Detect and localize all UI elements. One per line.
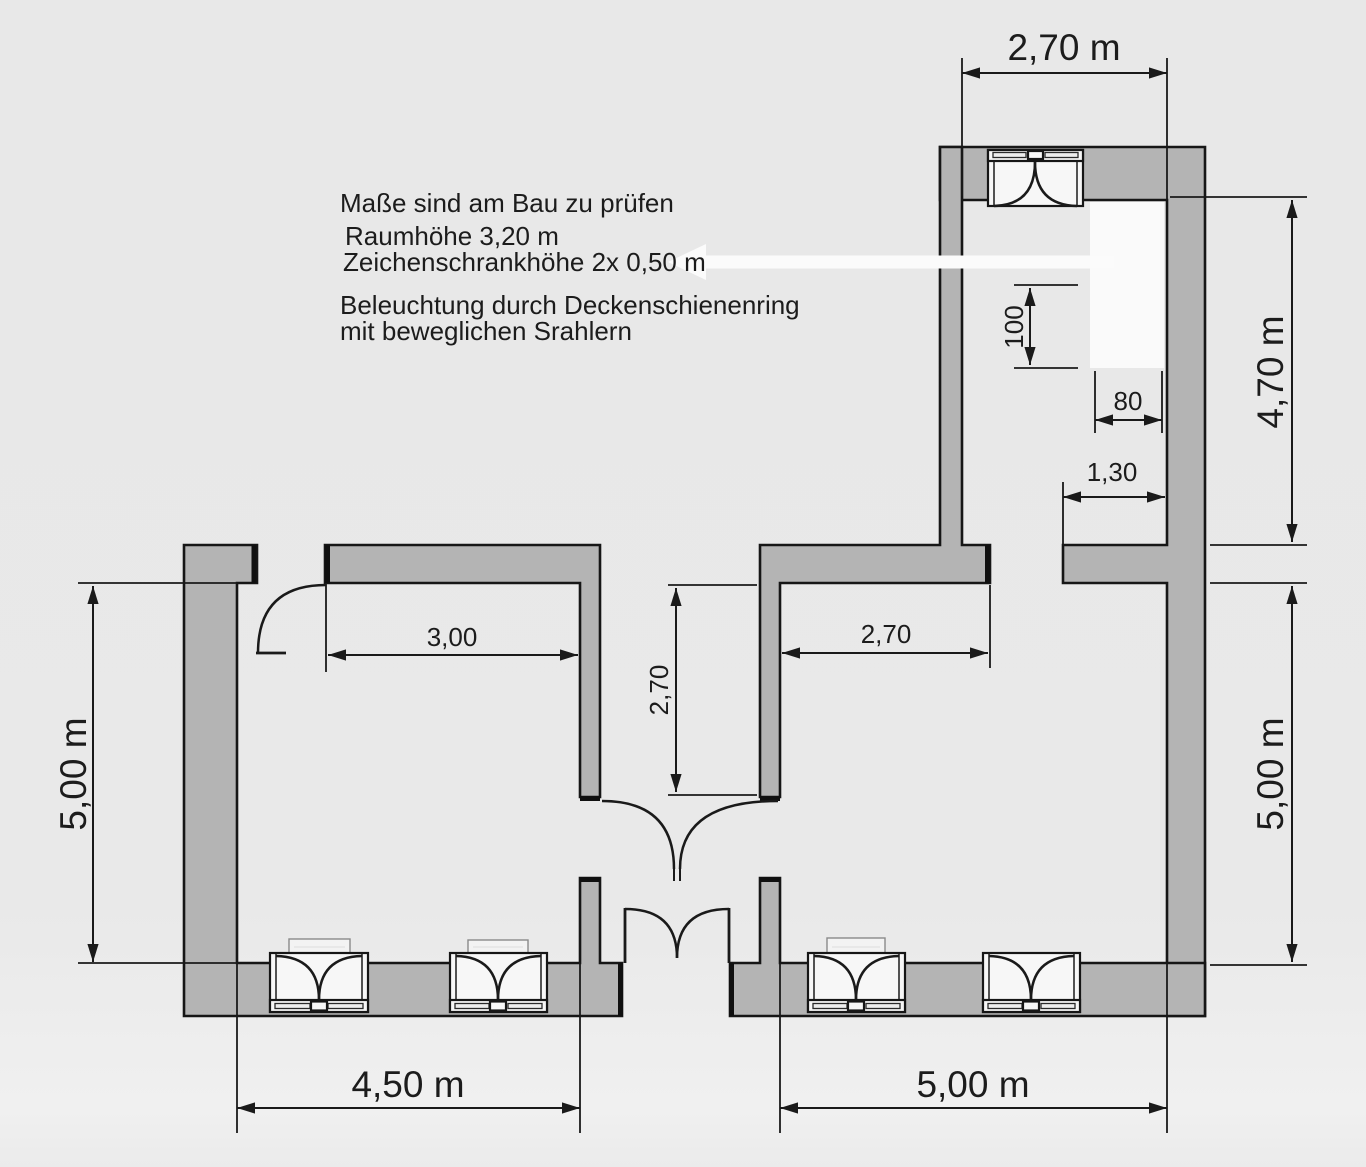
dim-label: 4,50 m [351, 1064, 464, 1105]
note-cabinet-height: Zeichenschrankhöhe 2x 0,50 m [343, 247, 706, 277]
dim-corridor-depth: 2,70 [644, 585, 757, 795]
door-corridor-double [602, 801, 778, 881]
callout-arrow [668, 244, 1114, 280]
door-left-room [256, 583, 326, 672]
wall-left-room-main [184, 545, 622, 1016]
dim-wall-segment: 1,30 [1063, 457, 1165, 545]
walls [184, 147, 1205, 1016]
doors [256, 583, 778, 963]
dim-label: 100 [999, 305, 1029, 348]
dim-cabinet-depth: 100 [999, 285, 1078, 368]
dim-label: 5,00 m [916, 1064, 1029, 1105]
dim-label: 2,70 [644, 665, 674, 716]
note-measure: Maße sind am Bau zu prüfen [340, 188, 674, 218]
drawing-cabinet [1090, 202, 1164, 368]
window-top-room [988, 150, 1083, 206]
dim-label: 4,70 m [1250, 315, 1291, 428]
door-entrance-double [625, 908, 729, 963]
wall-corridor-right-and-upper-left [760, 147, 990, 797]
dim-label: 2,70 [861, 619, 912, 649]
dim-label: 2,70 m [1007, 27, 1120, 68]
dim-label: 3,00 [427, 622, 478, 652]
window-left-room-1 [270, 939, 368, 1012]
window-right-room-1 [808, 938, 905, 1012]
note-lighting-line2: mit beweglichen Srahlern [340, 316, 632, 346]
floor-plan: 2,70 m 4,70 m 5,00 m 5,00 m 4,50 m [0, 0, 1366, 1167]
dim-label: 5,00 m [53, 717, 94, 830]
dim-label: 5,00 m [1250, 717, 1291, 830]
wall-left-room-top [325, 545, 600, 797]
window-right-room-2 [983, 953, 1080, 1012]
dim-cabinet-width: 80 [1095, 371, 1162, 433]
wall-bottom-right [730, 878, 1205, 1016]
dim-label: 1,30 [1087, 457, 1138, 487]
dim-lower-right-height: 5,00 m [1210, 583, 1307, 965]
dim-door-wall-offset: 3,00 [328, 622, 578, 655]
window-left-room-2 [450, 940, 547, 1012]
dim-right-room-opening: 2,70 [782, 585, 990, 668]
dim-label: 80 [1114, 386, 1143, 416]
